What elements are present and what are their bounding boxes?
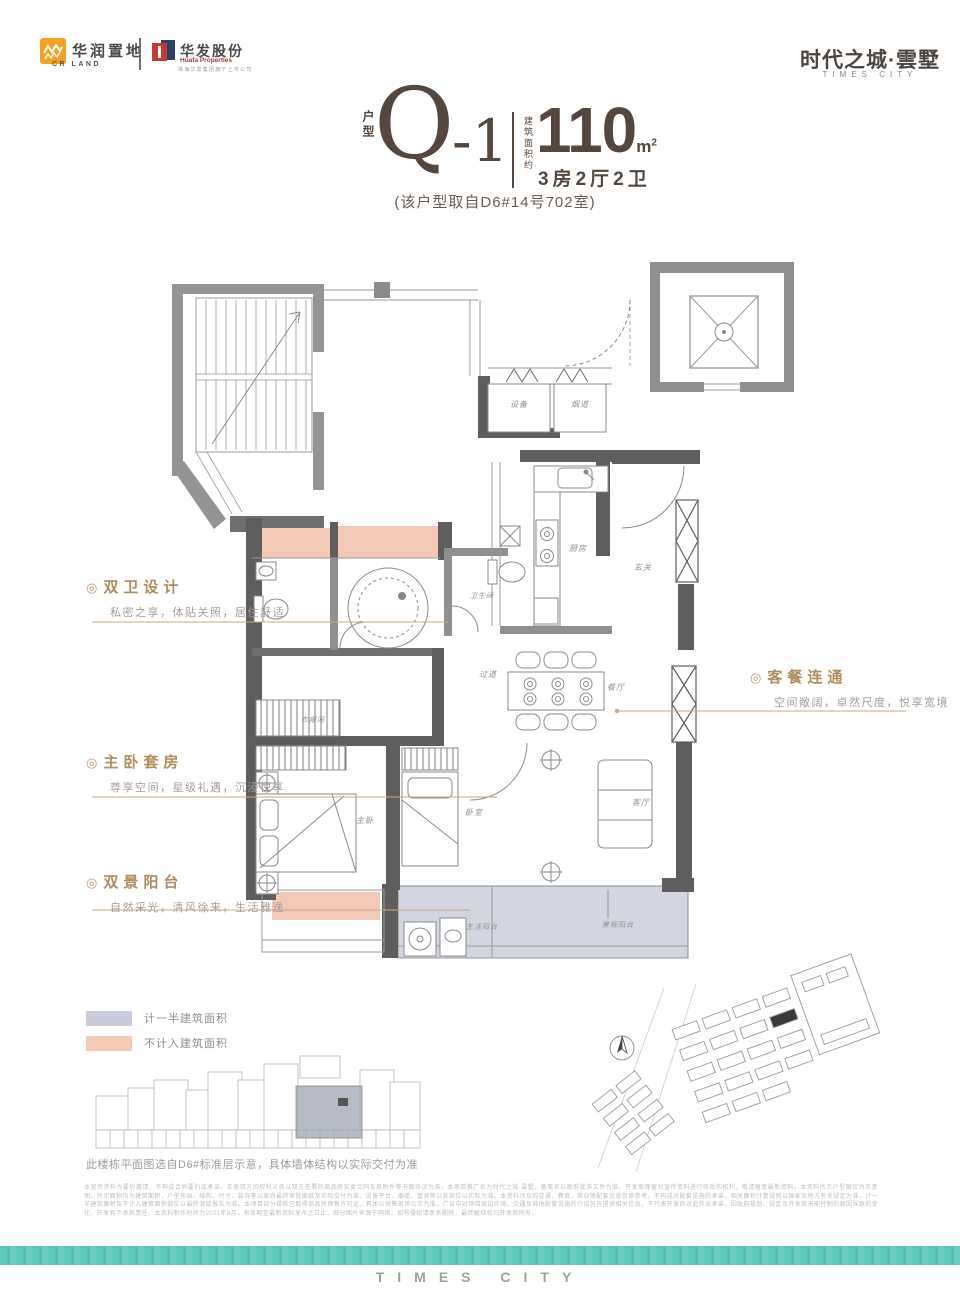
flyer-page: 设备 烟道 厨房 玄关 卫生间 餐厅 过道 客厅 衣帽间 主卧 卧室 生活阳台 … (0, 0, 960, 1300)
annotation-living-dining: ◎客餐连通 空间敞阔，卓然尺度，悦享宽境 (750, 666, 949, 710)
unit-rooms-summary: 3房2厅2卫 (538, 164, 651, 191)
annotation-dual-balcony: ◎双景阳台 自然采光，清风徐来，生活雅逸 (86, 871, 285, 915)
legend-label: 计一半建筑面积 (144, 1010, 228, 1026)
circle-bullet-icon: ◎ (86, 580, 97, 595)
living-room-furniture (540, 749, 652, 883)
cloakroom-wardrobe (256, 700, 340, 736)
legend-label: 不计入建筑面积 (144, 1035, 228, 1051)
compass-icon (610, 1036, 634, 1060)
room-label-entry: 玄关 (634, 563, 652, 572)
half-area-swatch (86, 1011, 132, 1026)
site-plan (592, 954, 888, 1172)
footer-teal-band (0, 1246, 960, 1265)
area-unit-base: m (636, 137, 651, 156)
balcony-fixtures (404, 918, 466, 956)
highlighted-unit (296, 1086, 362, 1138)
key-plan-note: 此楼栋平面图选自D6#标准层示意，具体墙体结构以实际交付为准 (86, 1156, 418, 1172)
annotation-desc: 空间敞阔，卓然尺度，悦享宽境 (750, 694, 949, 710)
building-key-plan (96, 1056, 420, 1148)
unit-area-value: 110m2 (536, 98, 657, 162)
legend-item-half-area: 计一半建筑面积 (86, 1010, 228, 1026)
room-label-equipment: 设备 (510, 400, 528, 409)
legend-item-excluded-area: 不计入建筑面积 (86, 1035, 228, 1051)
annotation-title: 客餐连通 (767, 669, 847, 686)
circle-bullet-icon: ◎ (86, 875, 97, 890)
room-label-cloakroom: 衣帽间 (301, 716, 325, 724)
circle-bullet-icon: ◎ (86, 755, 97, 770)
corridor-top (324, 282, 630, 384)
disclaimer-text: 本宣传资料为要约邀请，不构成合同要约或承诺，买卖双方的权利义务以双方签署的商品房… (84, 1184, 878, 1218)
annotation-desc: 私密之享，体贴关照，居住舒适 (86, 604, 285, 620)
annotation-master-suite: ◎主卧套房 尊享空间，星级礼遇，沉浸悦享 (86, 751, 285, 795)
brand-divider (139, 38, 141, 70)
elevator-shaft (650, 262, 794, 392)
area-unit-sup: 2 (651, 137, 657, 148)
project-name-en: TIMES CITY (790, 70, 950, 79)
site-highlighted-building (770, 1009, 798, 1028)
room-label-master-bedroom: 主卧 (356, 816, 374, 825)
annotation-dual-bath: ◎双卫设计 私密之享，体贴关照，居住舒适 (86, 576, 285, 620)
stairwell (172, 284, 324, 532)
huafa-logo-icon (152, 40, 175, 63)
unit-area-label: 建筑面积约 (522, 116, 535, 171)
room-label-hallway: 过道 (479, 670, 497, 679)
room-label-bedroom: 卧室 (465, 808, 483, 817)
area-number: 110 (536, 94, 636, 166)
unit-code: Q (374, 76, 454, 174)
entry-door (622, 466, 684, 528)
footer-brand: TIMES CITY (0, 1269, 960, 1285)
annotation-title: 双卫设计 (103, 579, 183, 596)
unit-header-divider (512, 112, 514, 188)
crland-name-cn: 华润置地 (72, 40, 144, 61)
huafa-name-en: Huafa Properties (180, 57, 232, 64)
area-unit: m2 (636, 137, 657, 156)
room-label-living: 客厅 (632, 798, 651, 807)
room-label-kitchen: 厨房 (569, 544, 587, 553)
bedroom-furniture (402, 743, 527, 866)
excluded-area-swatch (86, 1036, 132, 1051)
annotation-title: 主卧套房 (103, 754, 183, 771)
room-label-flue: 烟道 (571, 400, 589, 409)
unit-source-note: (该户型取自D6#14号702室) (330, 191, 660, 212)
crland-name-en: CR LAND (52, 61, 101, 68)
annotation-title: 双景阳台 (103, 874, 183, 891)
room-label-service-balcony: 生活阳台 (466, 923, 498, 931)
room-label-bathroom: 卫生间 (470, 592, 494, 600)
circle-bullet-icon: ◎ (750, 670, 761, 685)
dining-set (508, 652, 604, 730)
area-legend: 计一半建筑面积 不计入建筑面积 (86, 1010, 228, 1060)
unit-code-suffix: -1 (452, 112, 509, 170)
huafa-tagline: 珠海华发集团旗下上市公司 (178, 66, 252, 73)
annotation-desc: 尊享空间，星级礼遇，沉浸悦享 (86, 779, 285, 795)
room-label-dining: 餐厅 (607, 683, 626, 692)
annotation-desc: 自然采光，清风徐来，生活雅逸 (86, 899, 285, 915)
room-label-view-balcony: 景观阳台 (602, 921, 634, 929)
